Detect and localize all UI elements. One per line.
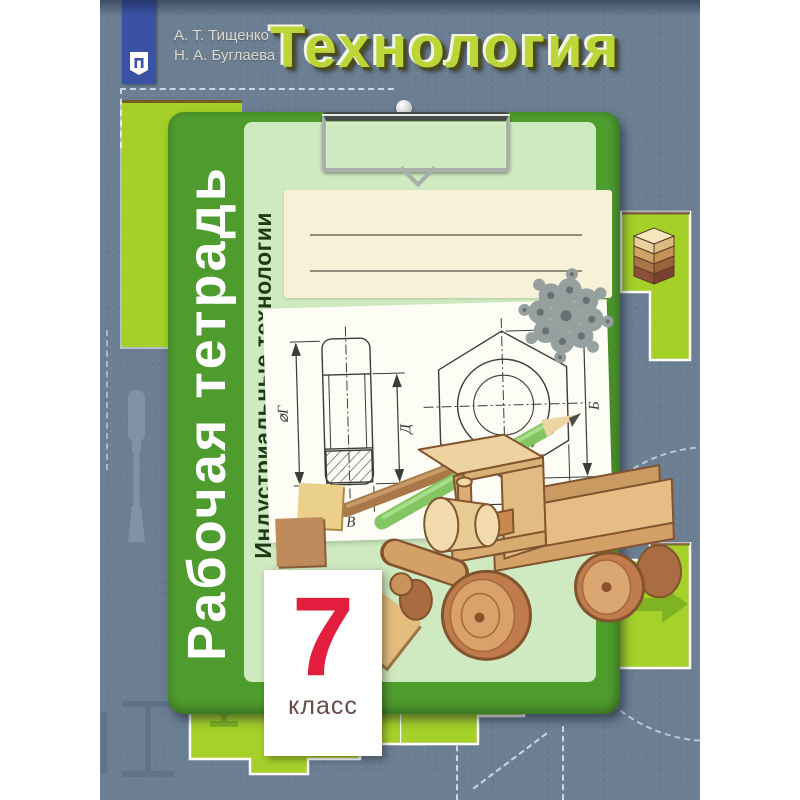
author-line-2: Н. А. Буглаева (174, 46, 275, 66)
wood-square-dark (275, 517, 325, 567)
decor-dashed-line (106, 330, 108, 470)
wooden-toy-truck-illustration (352, 412, 695, 678)
grade-label: класс (264, 692, 382, 721)
author-line-1: А. Т. Тищенко (174, 26, 275, 46)
dim-label-side-diameter: ⌀Г (275, 404, 292, 423)
clipboard-clip-icon (322, 112, 510, 172)
book-title: Технология (270, 14, 620, 81)
name-plate-line (310, 234, 582, 236)
series-vertical-title: Рабочая тетрадь (176, 165, 238, 661)
chisel-silhouette-icon (118, 390, 158, 554)
grade-card: 7 класс (264, 570, 382, 756)
publisher-emblem-icon (128, 50, 150, 76)
series-band: Рабочая тетрадь (168, 112, 246, 714)
grade-number: 7 (264, 584, 382, 690)
plywood-stack-icon (634, 228, 674, 284)
metal-filigree-snowflake-icon (502, 258, 635, 374)
authors-block: А. Т. Тищенко Н. А. Буглаева (174, 26, 275, 66)
publisher-logo (122, 0, 156, 84)
cover-photo: А. Т. Тищенко Н. А. Буглаева Технология … (100, 0, 700, 800)
book-cover-page: А. Т. Тищенко Н. А. Буглаева Технология … (0, 0, 800, 800)
